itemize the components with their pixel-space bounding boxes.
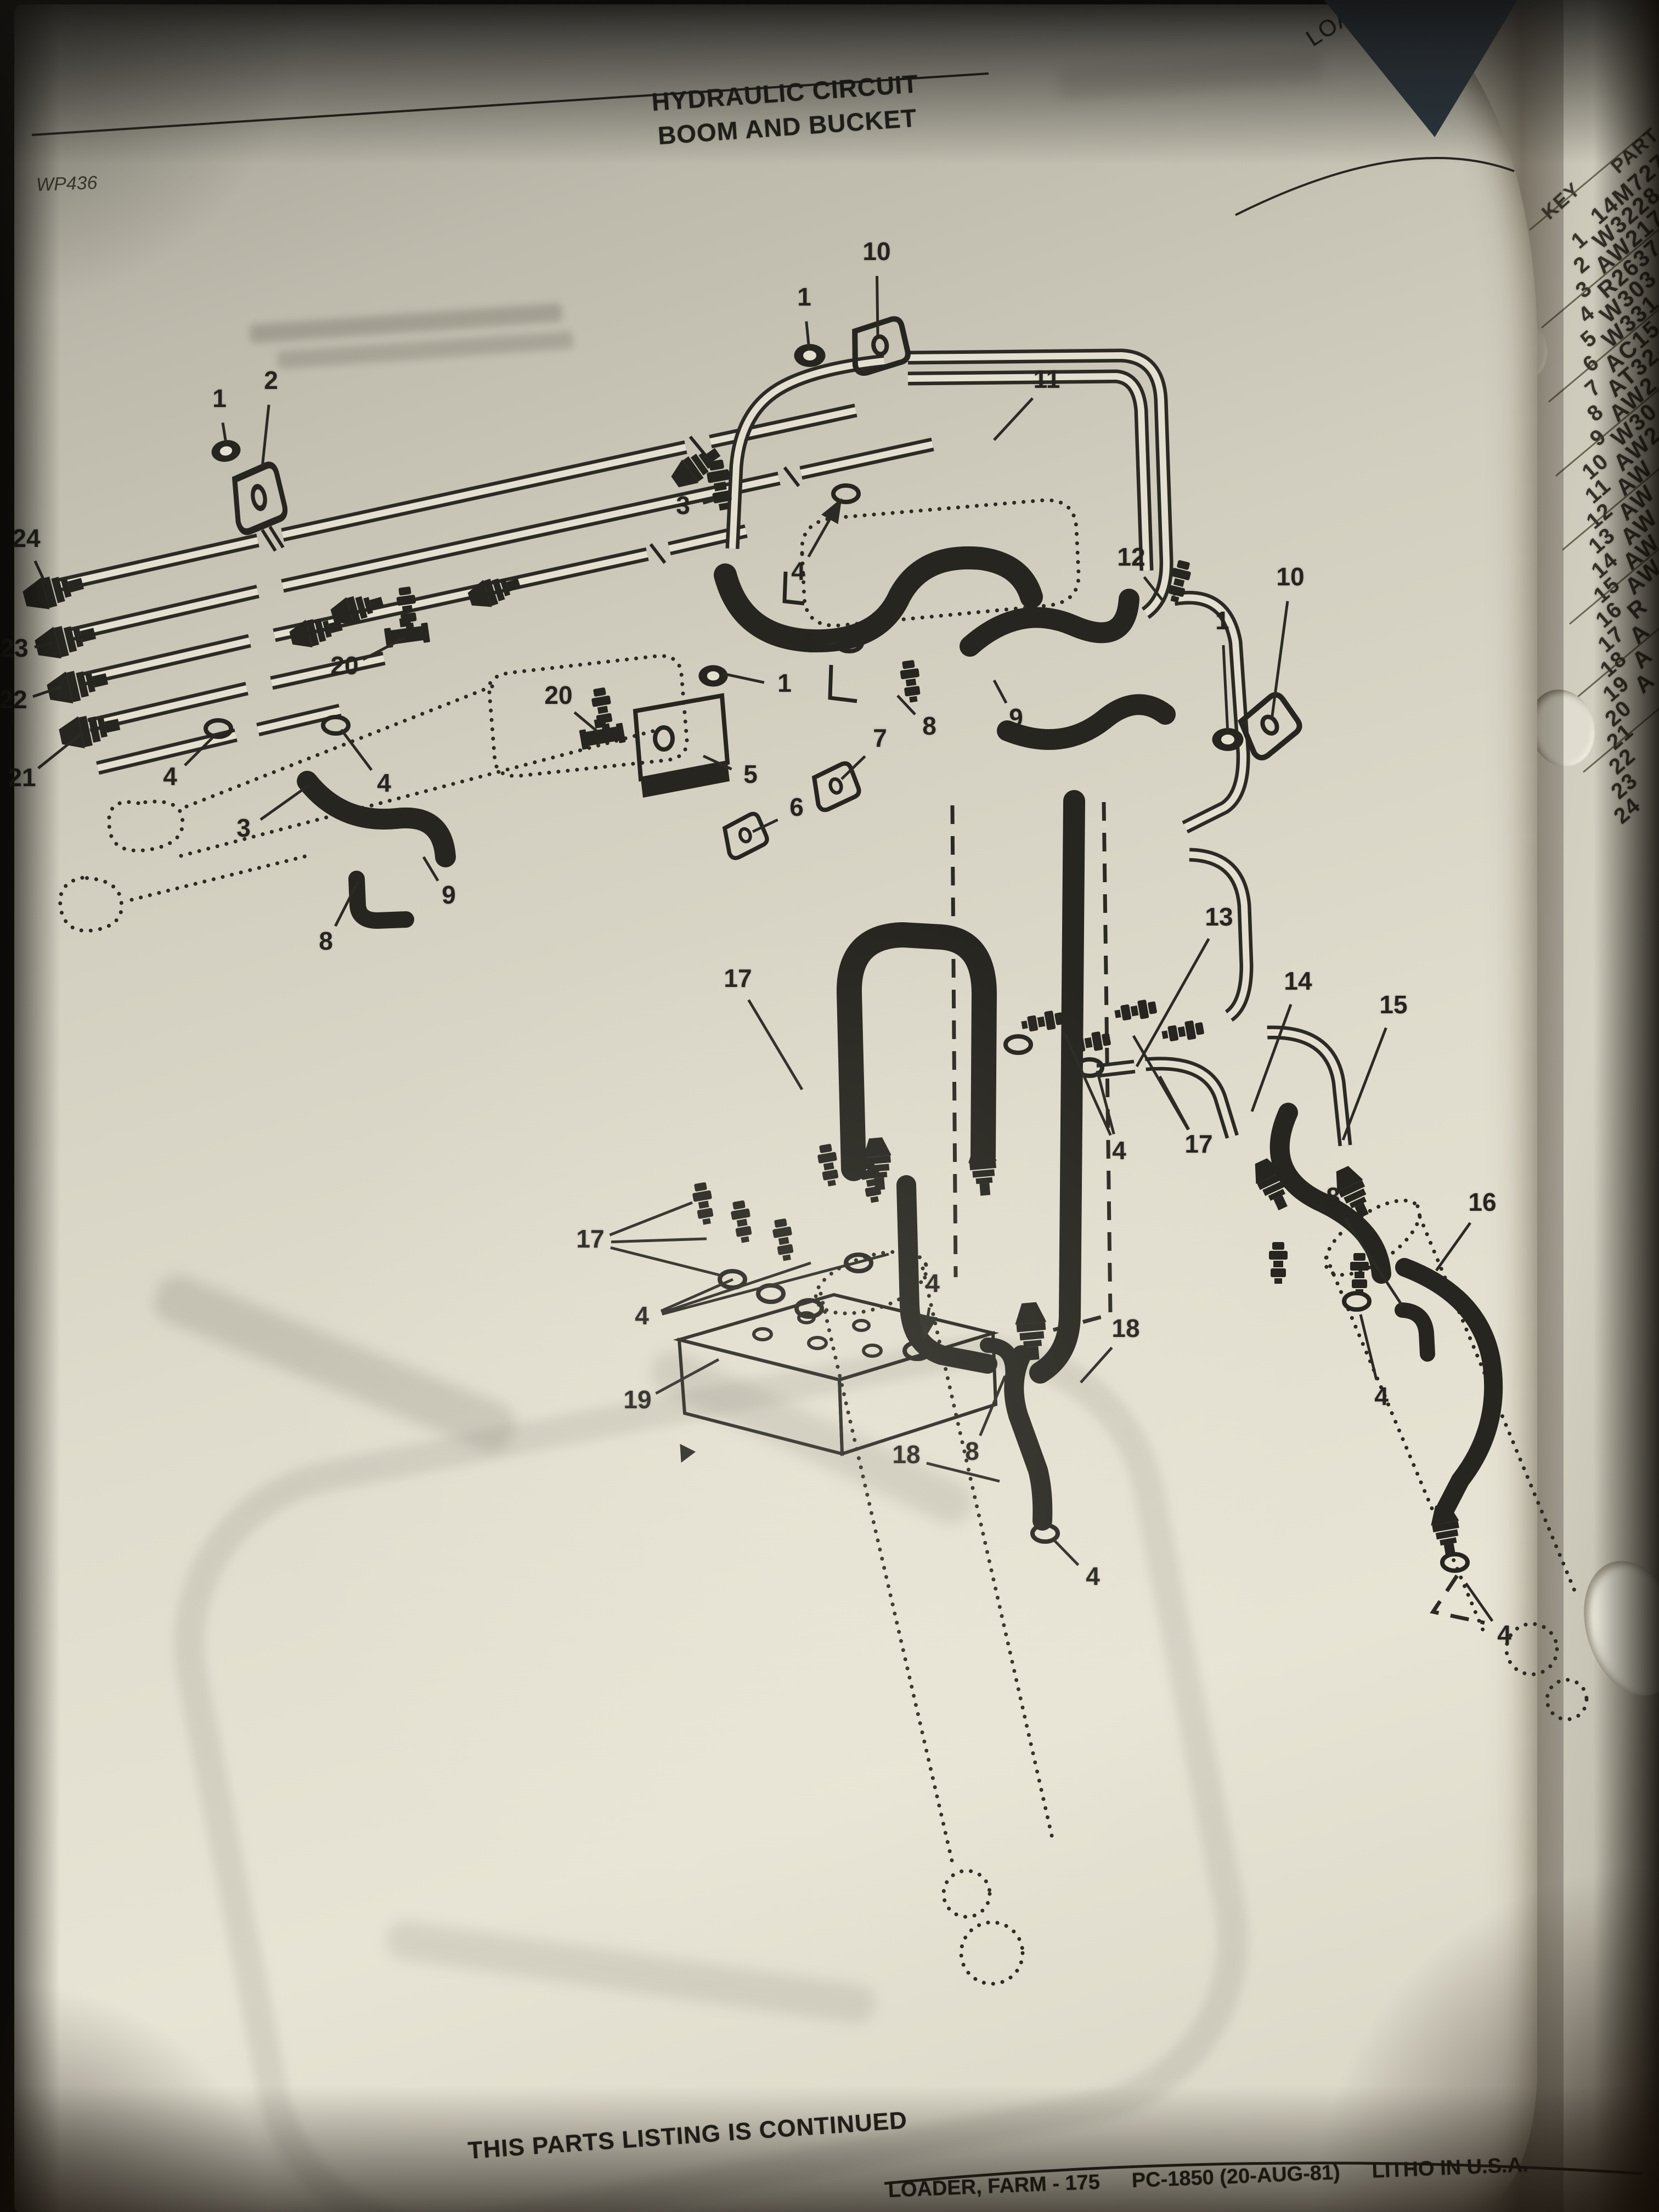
callout-4: 4 [1364,1381,1399,1411]
callout-3: 3 [665,490,701,520]
callout-8: 8 [955,1436,990,1466]
callout-19: 19 [620,1385,655,1414]
callout-4: 4 [153,761,188,791]
callout-1: 1 [767,668,802,698]
callout-1: 1 [202,383,237,413]
callout-20: 20 [327,651,362,680]
callout-1: 1 [1205,606,1240,635]
callout-4: 4 [1487,1620,1522,1649]
callout-9: 9 [431,880,466,910]
leader-lines [0,0,1659,2212]
callout-8: 8 [308,926,343,956]
callout-14: 14 [1280,966,1316,996]
callout-3: 3 [226,813,261,843]
callout-2: 2 [253,365,289,395]
callout-23: 23 [0,633,32,663]
callout-4: 4 [624,1301,659,1330]
callout-13: 13 [1201,902,1237,932]
callout-4: 4 [366,768,402,798]
callout-6: 6 [779,792,814,822]
callout-4: 4 [1075,1561,1110,1591]
callout-10: 10 [859,236,894,266]
callout-8: 8 [912,711,947,741]
callout-17: 17 [720,963,755,993]
callout-11: 11 [1029,364,1064,394]
callout-10: 10 [1273,562,1308,591]
callout-12: 12 [1114,542,1149,572]
callout-4: 4 [781,556,816,586]
callout-18: 18 [1108,1313,1143,1343]
callout-22: 22 [0,685,31,714]
callout-18: 18 [889,1440,924,1469]
callout-9: 9 [998,703,1034,732]
callout-17: 17 [573,1224,608,1254]
callout-15: 15 [1376,990,1411,1019]
callout-21: 21 [4,763,39,792]
callout-8: 8 [1316,1182,1351,1211]
photo-of-parts-catalog: KEYPART114M7272W32283AW2174R26375W3036W3… [0,0,1659,2212]
callout-5: 5 [733,759,768,789]
figure-code: WP436 [36,172,98,196]
callout-17: 17 [1181,1129,1216,1159]
callout-20: 20 [541,680,576,710]
callout-4: 4 [790,629,825,658]
callout-16: 16 [1465,1187,1500,1217]
callout-24: 24 [9,523,44,553]
callout-4: 4 [915,1268,950,1298]
callout-1: 1 [787,282,822,312]
callout-4: 4 [1102,1136,1137,1165]
callout-7: 7 [862,723,898,753]
